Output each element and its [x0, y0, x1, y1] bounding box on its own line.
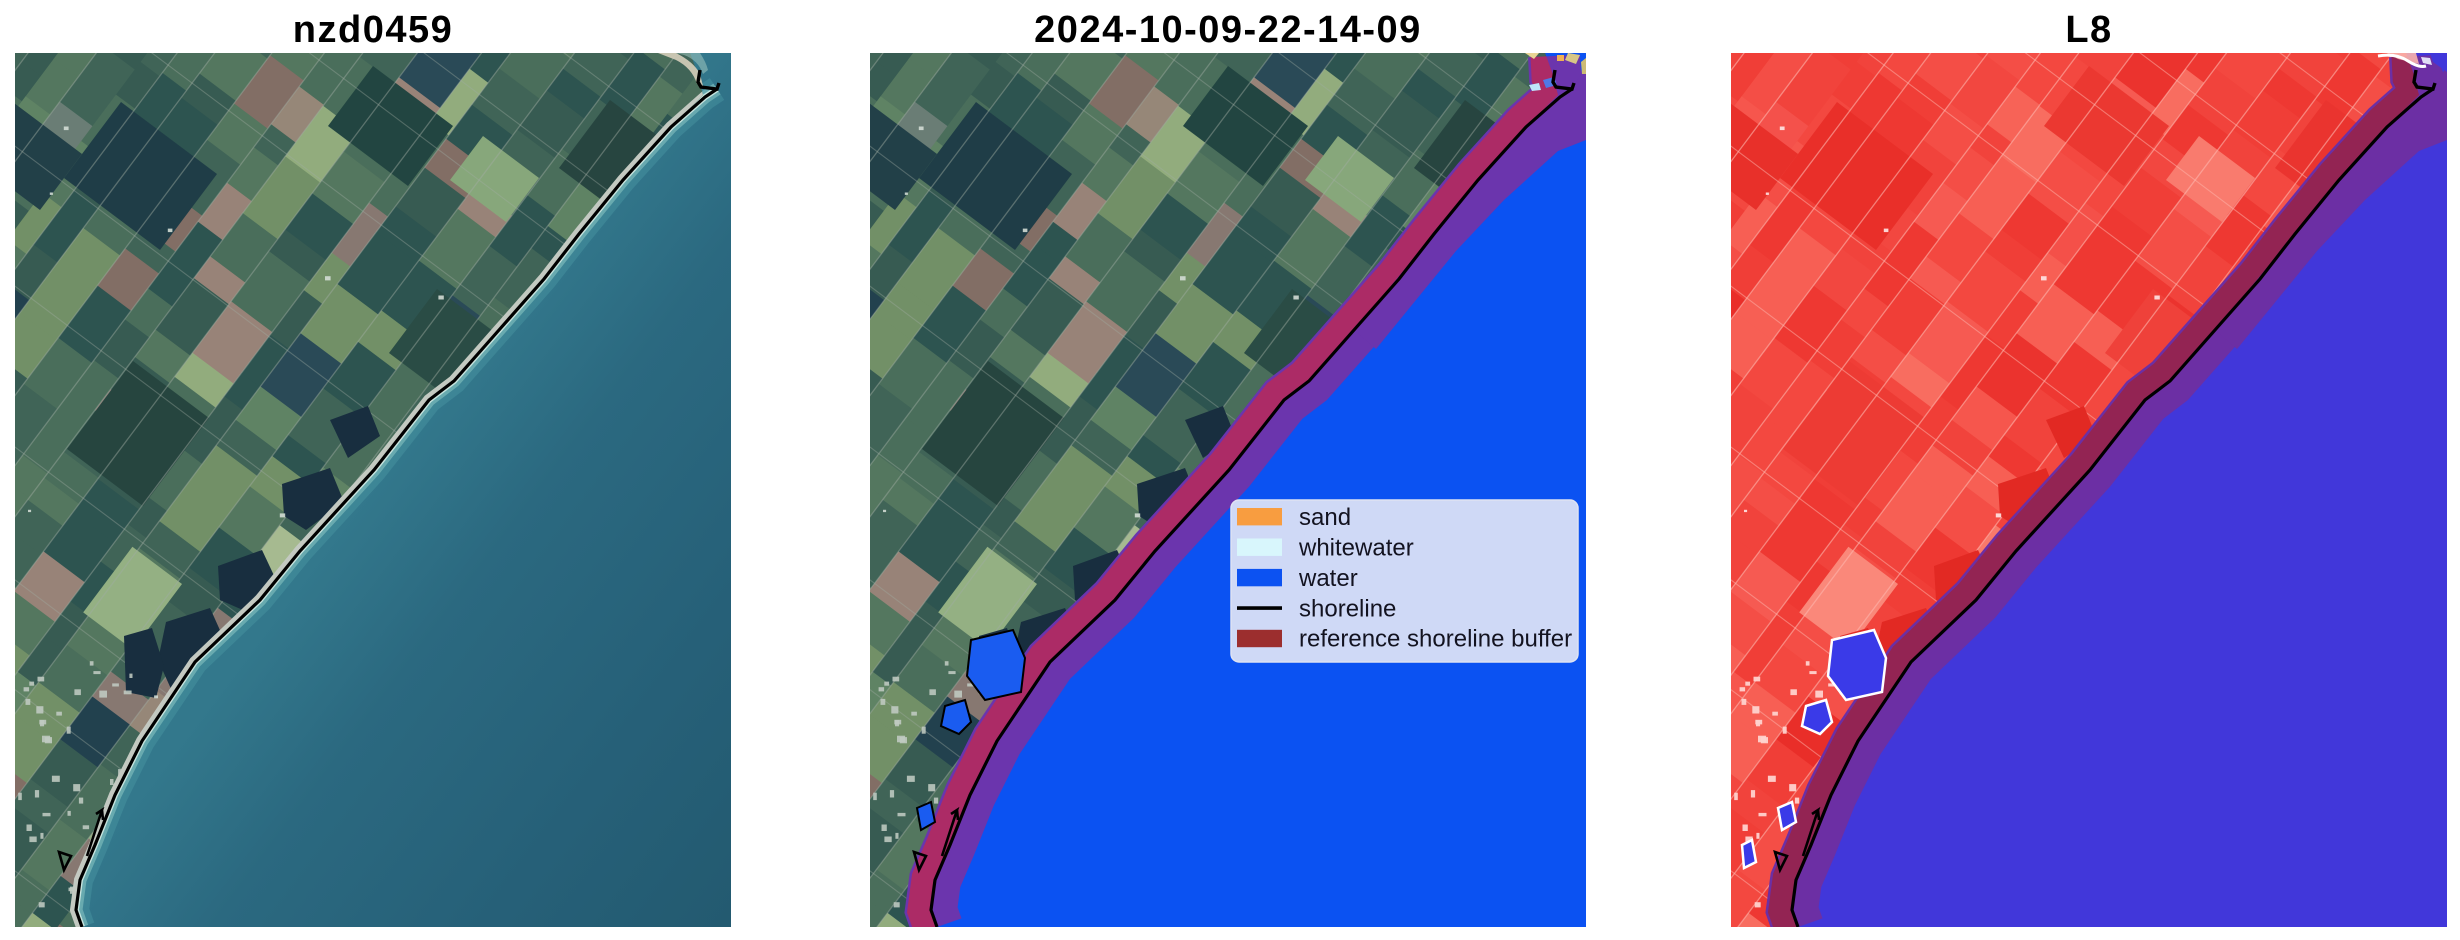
svg-text:sand: sand	[1299, 504, 1351, 531]
svg-text:2024-10-09-22-14-09: 2024-10-09-22-14-09	[1034, 9, 1422, 51]
svg-text:water: water	[1298, 565, 1358, 592]
svg-text:nzd0459: nzd0459	[293, 9, 453, 51]
svg-text:shoreline: shoreline	[1299, 595, 1396, 622]
svg-text:reference shoreline buffer: reference shoreline buffer	[1299, 626, 1572, 653]
svg-text:L8: L8	[2065, 9, 2112, 51]
svg-text:whitewater: whitewater	[1298, 534, 1414, 561]
